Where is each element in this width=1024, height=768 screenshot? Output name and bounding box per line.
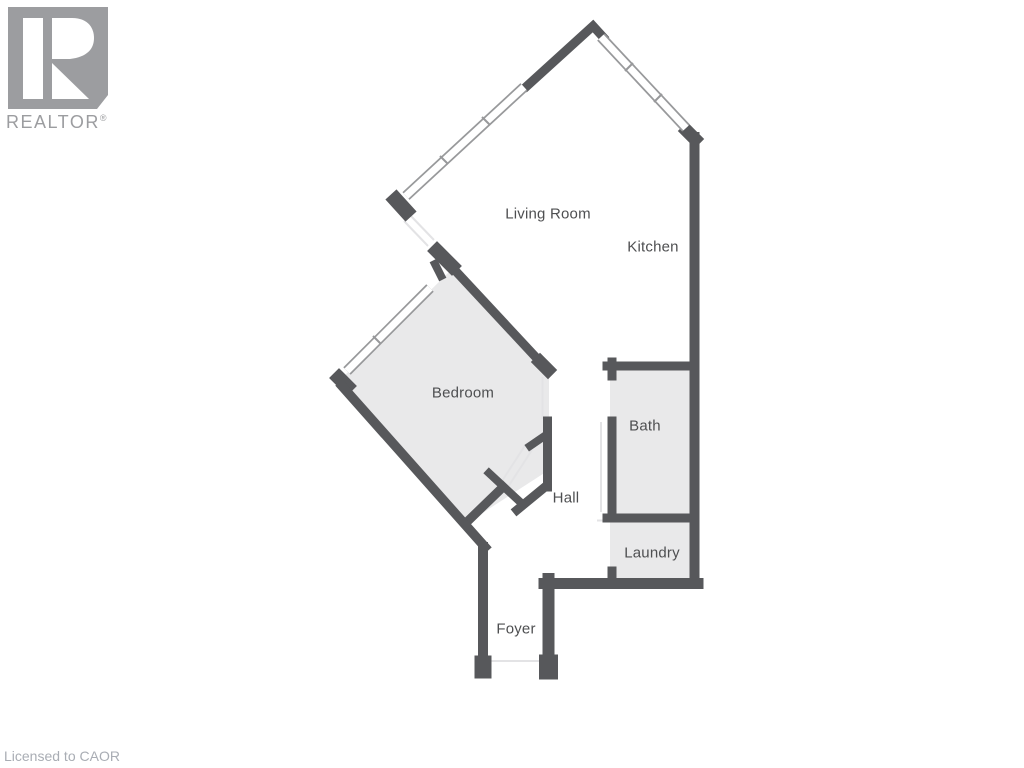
license-text: Licensed to CAOR xyxy=(4,748,120,764)
bath-fill xyxy=(610,366,695,516)
window-living-west xyxy=(406,87,524,196)
room-label-bath: Bath xyxy=(629,418,661,435)
window-living-east xyxy=(601,37,686,128)
logo-r-left-bar xyxy=(23,18,43,99)
living-bedroom-door-line xyxy=(404,221,428,246)
living-bedroom-door-line xyxy=(410,215,434,240)
room-label-laundry: Laundry xyxy=(624,545,680,562)
room-label-bedroom: Bedroom xyxy=(432,385,494,402)
room-label-kitchen: Kitchen xyxy=(627,239,678,256)
realtor-logo-word: REALTOR xyxy=(6,112,100,132)
floorplan-page: REALTOR® Licensed to CAOR Living Room Ki… xyxy=(0,0,1024,768)
room-label-foyer: Foyer xyxy=(496,621,535,638)
realtor-logo-mark xyxy=(8,7,108,109)
room-label-living-room: Living Room xyxy=(505,206,591,223)
floorplan-drawing xyxy=(0,0,1024,768)
realtor-logo-text: REALTOR® xyxy=(6,112,107,133)
wall-bedroom-right-corner xyxy=(540,362,548,370)
wall-apex xyxy=(527,26,603,86)
wall-bedroom-top-corner-stub xyxy=(435,264,441,276)
registered-trademark-symbol: ® xyxy=(100,113,107,123)
wall-west-window-endcap xyxy=(396,200,406,211)
room-label-hall: Hall xyxy=(553,490,580,507)
